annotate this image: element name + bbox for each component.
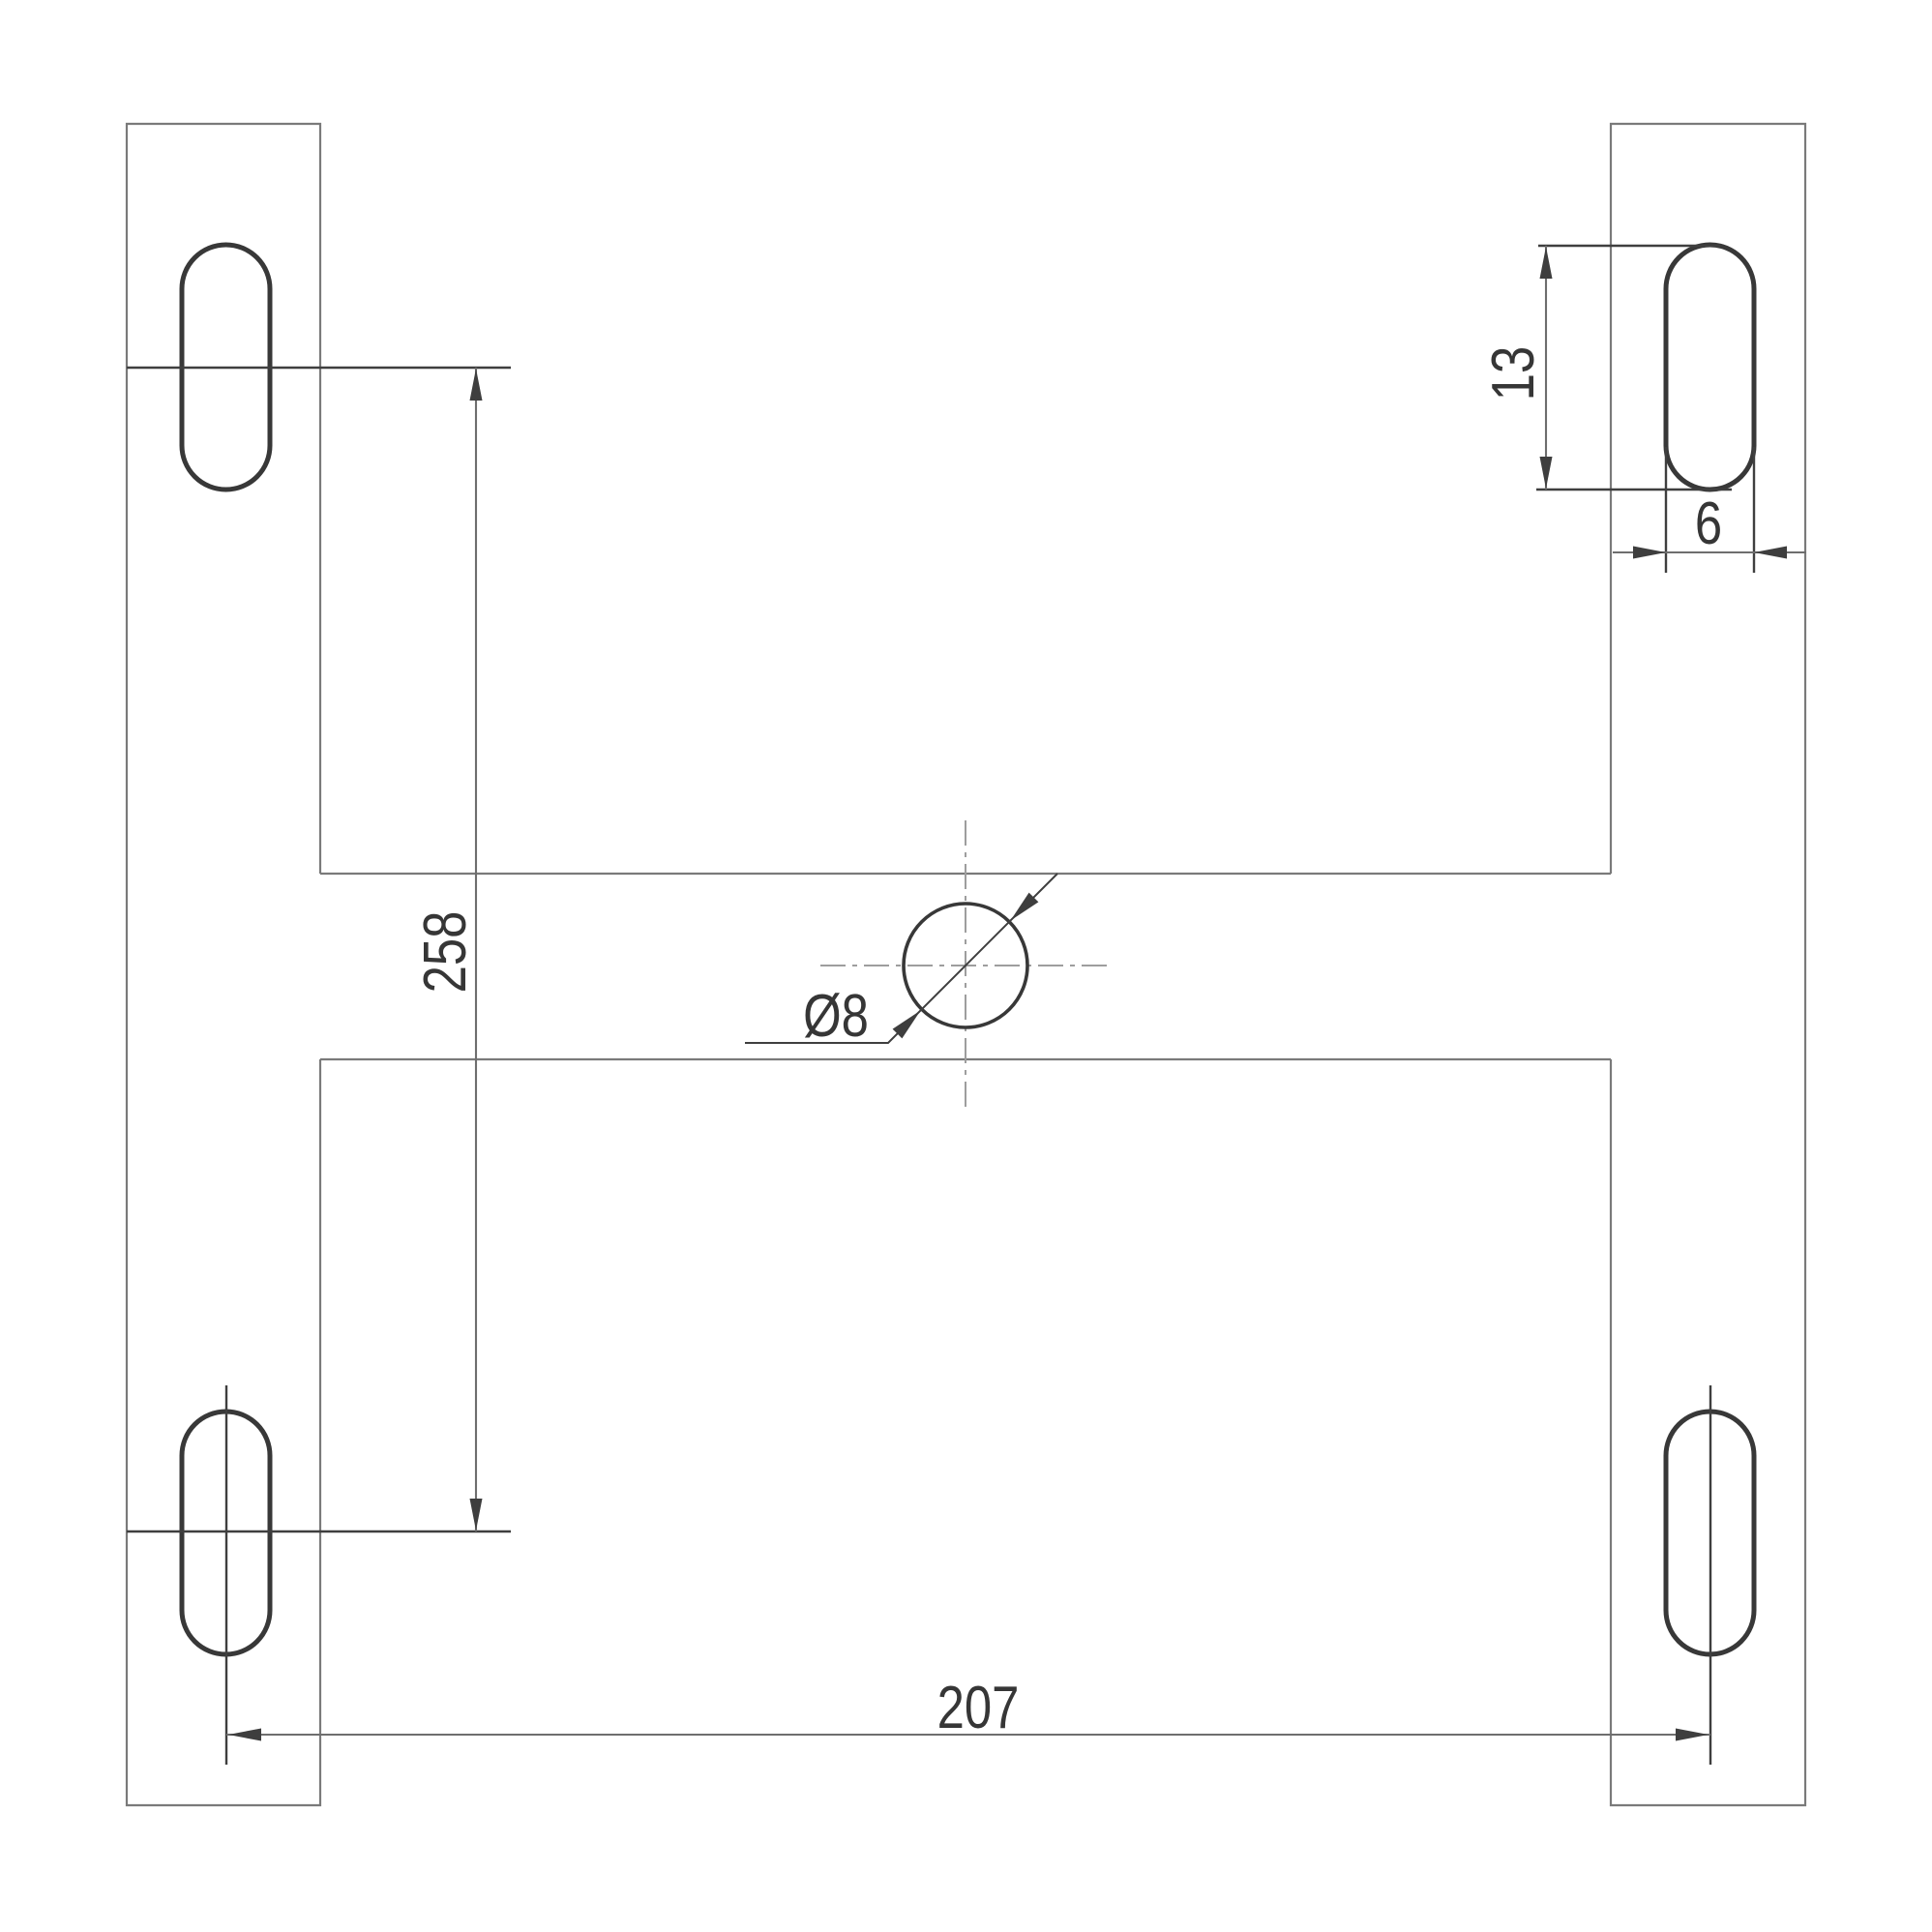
arrowhead-6-inward-left	[1633, 547, 1666, 559]
extension-lines	[127, 246, 1754, 1765]
arrowhead-258-down	[470, 1499, 483, 1531]
dim-text-vertical-spacing: 258	[412, 911, 479, 994]
arrowhead-207-right	[1676, 1729, 1709, 1741]
left-strip-outline	[127, 124, 320, 1805]
arrowhead-258-up	[470, 369, 483, 401]
dim-text-slot-length: 13	[1480, 346, 1547, 401]
diameter-leader-line	[745, 874, 1057, 1043]
arrowhead-207-left	[228, 1729, 261, 1741]
arrowhead-13-up	[1540, 247, 1553, 279]
right-strip-outline	[1611, 124, 1805, 1805]
dimension-texts: 258 207 13 6 Ø8	[412, 346, 1722, 1741]
dim-text-slot-width: 6	[1695, 490, 1722, 557]
arrowhead-13-down	[1540, 457, 1553, 489]
arrowhead-6-inward-right	[1754, 547, 1787, 559]
technical-drawing-canvas: 258 207 13 6 Ø8	[0, 0, 1932, 1932]
dim-text-hole-diameter: Ø8	[803, 983, 869, 1050]
arrowheads	[228, 247, 1787, 1741]
slot-top-right	[1666, 245, 1754, 490]
dim-text-horizontal-spacing: 207	[937, 1675, 1020, 1741]
